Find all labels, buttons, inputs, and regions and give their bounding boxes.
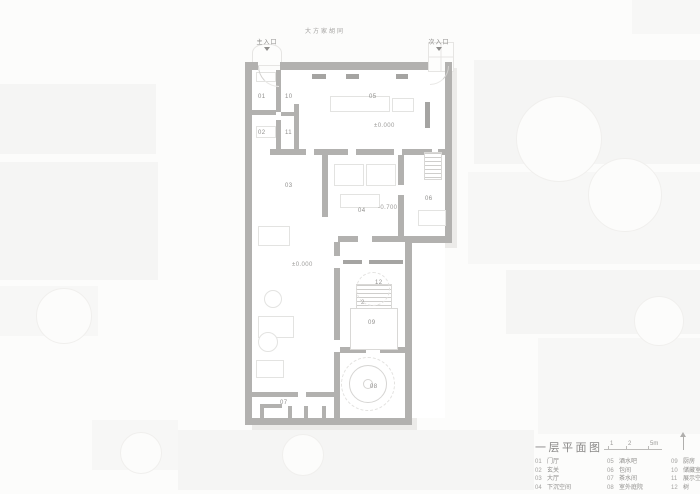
legend-column: 05酒水吧 06包间 07茶水间 08室外庭院: [607, 458, 657, 492]
legend-column: 09厨房 10储藏室 11展示空间 12树: [671, 458, 700, 492]
street-name: 大方家胡同: [287, 26, 363, 35]
scale-label: 1: [610, 441, 613, 447]
wall-segment: [306, 392, 336, 397]
legend-item: 01门厅: [535, 458, 593, 467]
bench: [346, 74, 359, 79]
scale-tick: [648, 446, 649, 450]
room-label-05: 05: [369, 94, 376, 101]
context-block: [468, 172, 700, 264]
furniture-table: [392, 98, 414, 112]
room-label-02: 02: [258, 130, 265, 137]
room-label-07: 07: [280, 400, 287, 407]
legend-column: 01门厅 02玄关 03大厅 04下沉空间: [535, 458, 593, 492]
wall-segment: [314, 149, 348, 155]
room-label-06: 06: [425, 196, 432, 203]
building-shadow: [452, 68, 457, 244]
furniture-table: [340, 194, 380, 208]
wall-segment: [356, 149, 394, 155]
secondary-entrance-label: 次入口: [421, 37, 457, 46]
wall-segment: [405, 236, 412, 425]
room-label-04: 04: [358, 208, 365, 215]
scale-label: 2: [628, 441, 631, 447]
legend-item: 06包间: [607, 467, 657, 476]
legend-item: 09厨房: [671, 458, 700, 467]
bench: [425, 102, 430, 128]
partition-stub: [260, 404, 282, 408]
north-arrow-icon: [680, 432, 688, 452]
bench: [343, 260, 362, 264]
level-label: -0.700: [378, 205, 397, 212]
scale-tick: [608, 446, 609, 450]
legend-item: 02玄关: [535, 467, 593, 476]
wall-segment: [398, 195, 404, 242]
bench: [396, 74, 408, 79]
context-tree: [120, 432, 162, 474]
legend-item: 11展示空间: [671, 475, 700, 484]
wall-segment: [405, 236, 452, 243]
wall-segment: [245, 418, 412, 425]
room-label-10: 10: [285, 94, 292, 101]
bench: [369, 260, 403, 264]
context-tree: [36, 288, 92, 344]
wall-segment: [398, 155, 404, 185]
scale-label: 5m: [650, 441, 658, 447]
wall-segment: [334, 352, 340, 418]
room-09-box: [350, 308, 398, 350]
room-label-01: 01: [258, 94, 265, 101]
wall-segment: [252, 110, 276, 115]
room-label-11: 11: [285, 130, 292, 137]
context-tree: [588, 158, 662, 232]
furniture-round-table: [264, 290, 282, 308]
furniture-table: [258, 226, 290, 246]
legend-item: 04下沉空间: [535, 484, 593, 493]
furniture-table: [418, 210, 446, 226]
context-block: [0, 84, 156, 154]
partition-stub: [304, 406, 308, 418]
furniture-table: [256, 360, 284, 378]
legend-item: 10储藏室: [671, 467, 700, 476]
room-label-08: 08: [370, 384, 377, 391]
drawing-title: 一层平面图: [535, 439, 603, 455]
furniture-round-table: [258, 332, 278, 352]
context-block: [632, 0, 700, 34]
context-block: [178, 430, 534, 490]
scale-bar-line: [604, 449, 662, 450]
wall-segment: [338, 236, 358, 242]
main-entrance-arrow-icon: [264, 47, 270, 51]
wall-segment: [334, 268, 340, 340]
room-label-09: 09: [368, 320, 375, 327]
tree-label-12: 12: [375, 280, 382, 287]
wall-segment: [445, 62, 452, 242]
stair-number: 2: [361, 300, 365, 307]
furniture-sofa: [334, 164, 364, 186]
staircase-small: [424, 152, 442, 180]
wall-segment: [372, 236, 405, 242]
floor-plan-sheet: { "street": { "name": "大方家胡同" }, "entran…: [0, 0, 700, 494]
wall-segment: [280, 62, 428, 70]
room-legend: 01门厅 02玄关 03大厅 04下沉空间 05酒水吧 06包间 07茶水间 0…: [535, 458, 700, 492]
legend-item: 12树: [671, 484, 700, 493]
scale-bar: 1 2 5m: [604, 440, 674, 450]
main-entrance-label: 主入口: [249, 37, 285, 46]
level-label: ±0.000: [292, 262, 313, 269]
legend-item: 03大厅: [535, 475, 593, 484]
partition-stub: [322, 406, 326, 418]
legend-item: 08室外庭院: [607, 484, 657, 493]
legend-item: 05酒水吧: [607, 458, 657, 467]
context-tree: [282, 434, 324, 476]
room-label-03: 03: [285, 183, 292, 190]
wall-segment: [252, 392, 298, 397]
furniture-table: [330, 96, 390, 112]
legend-item: 07茶水间: [607, 475, 657, 484]
partition-stub: [288, 406, 292, 418]
wall-segment: [322, 155, 328, 217]
wall-segment: [281, 112, 294, 116]
context-tree: [634, 296, 684, 346]
context-tree: [516, 96, 602, 182]
wall-segment: [245, 62, 252, 425]
wall-segment: [270, 149, 306, 155]
scale-tick: [626, 446, 627, 450]
wall-segment: [334, 242, 340, 256]
level-label: ±0.000: [374, 123, 395, 130]
secondary-entrance-arrow-icon: [436, 47, 442, 51]
context-block: [0, 162, 158, 280]
furniture-sofa: [366, 164, 396, 186]
bench: [312, 74, 326, 79]
wall-segment: [294, 104, 299, 155]
context-block: [538, 338, 700, 434]
building-shadow: [252, 425, 417, 430]
